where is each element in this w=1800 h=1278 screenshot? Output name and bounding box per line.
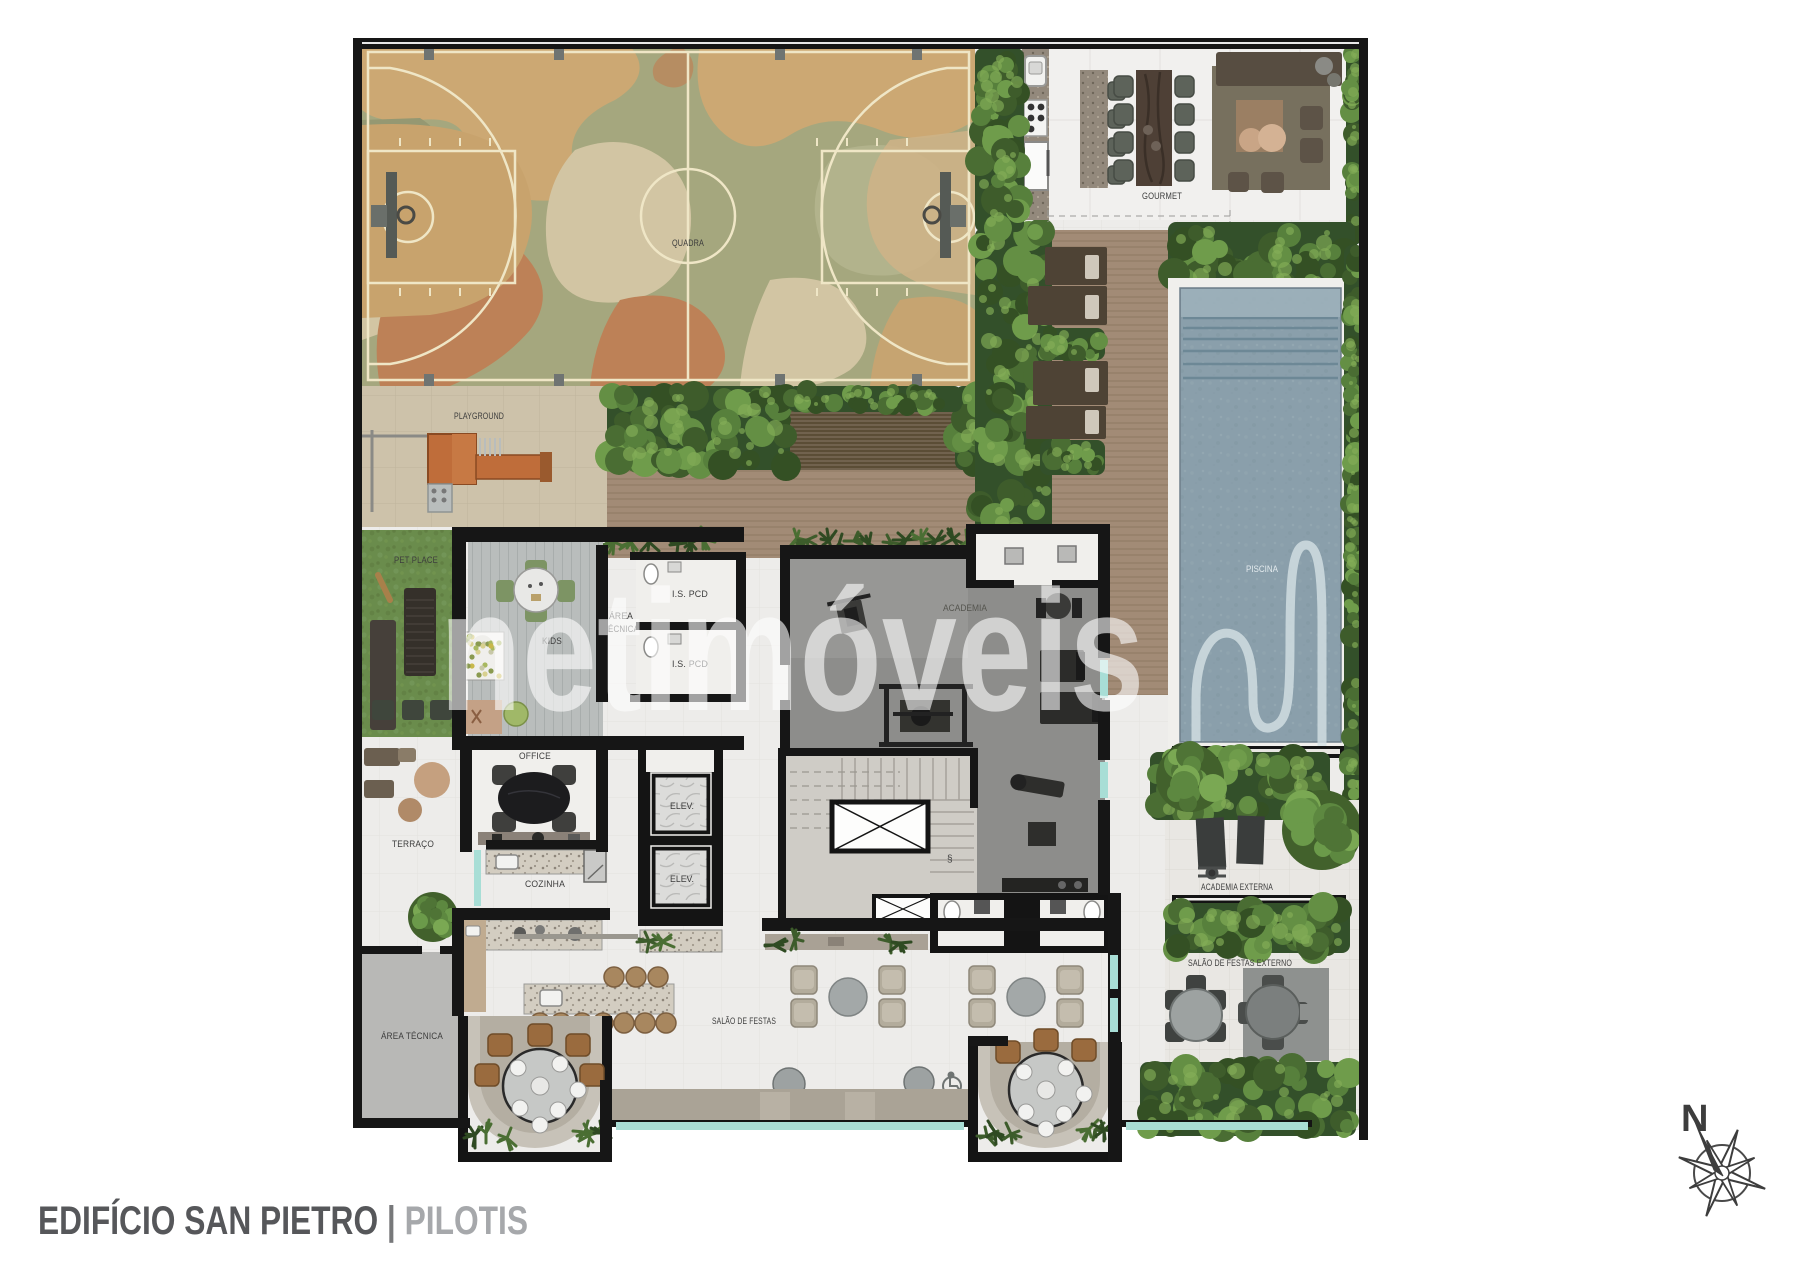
svg-text:TERRAÇO: TERRAÇO [392,839,434,850]
svg-text:COZINHA: COZINHA [525,879,565,890]
svg-text:PLAYGROUND: PLAYGROUND [454,411,504,422]
svg-text:ELEV.: ELEV. [670,801,694,811]
svg-text:netimóveis: netimóveis [440,555,1145,747]
svg-text:EDIFÍCIO SAN PIETRO | PILOTIS: EDIFÍCIO SAN PIETRO | PILOTIS [38,1198,528,1243]
svg-text:PET PLACE: PET PLACE [394,555,438,566]
svg-text:§: § [947,854,953,865]
svg-text:SALÃO DE FESTAS: SALÃO DE FESTAS [712,1016,776,1027]
svg-text:GOURMET: GOURMET [1142,191,1182,202]
svg-text:QUADRA: QUADRA [672,238,704,249]
svg-text:SALÃO DE FESTAS EXTERNO: SALÃO DE FESTAS EXTERNO [1188,958,1292,969]
svg-text:OFFICE: OFFICE [519,751,551,762]
svg-text:PISCINA: PISCINA [1246,564,1279,575]
svg-text:ELEV.: ELEV. [670,874,694,884]
svg-text:ACADEMIA EXTERNA: ACADEMIA EXTERNA [1201,882,1273,893]
svg-text:N: N [1681,1098,1708,1140]
svg-text:ÁREA TÉCNICA: ÁREA TÉCNICA [381,1031,443,1042]
